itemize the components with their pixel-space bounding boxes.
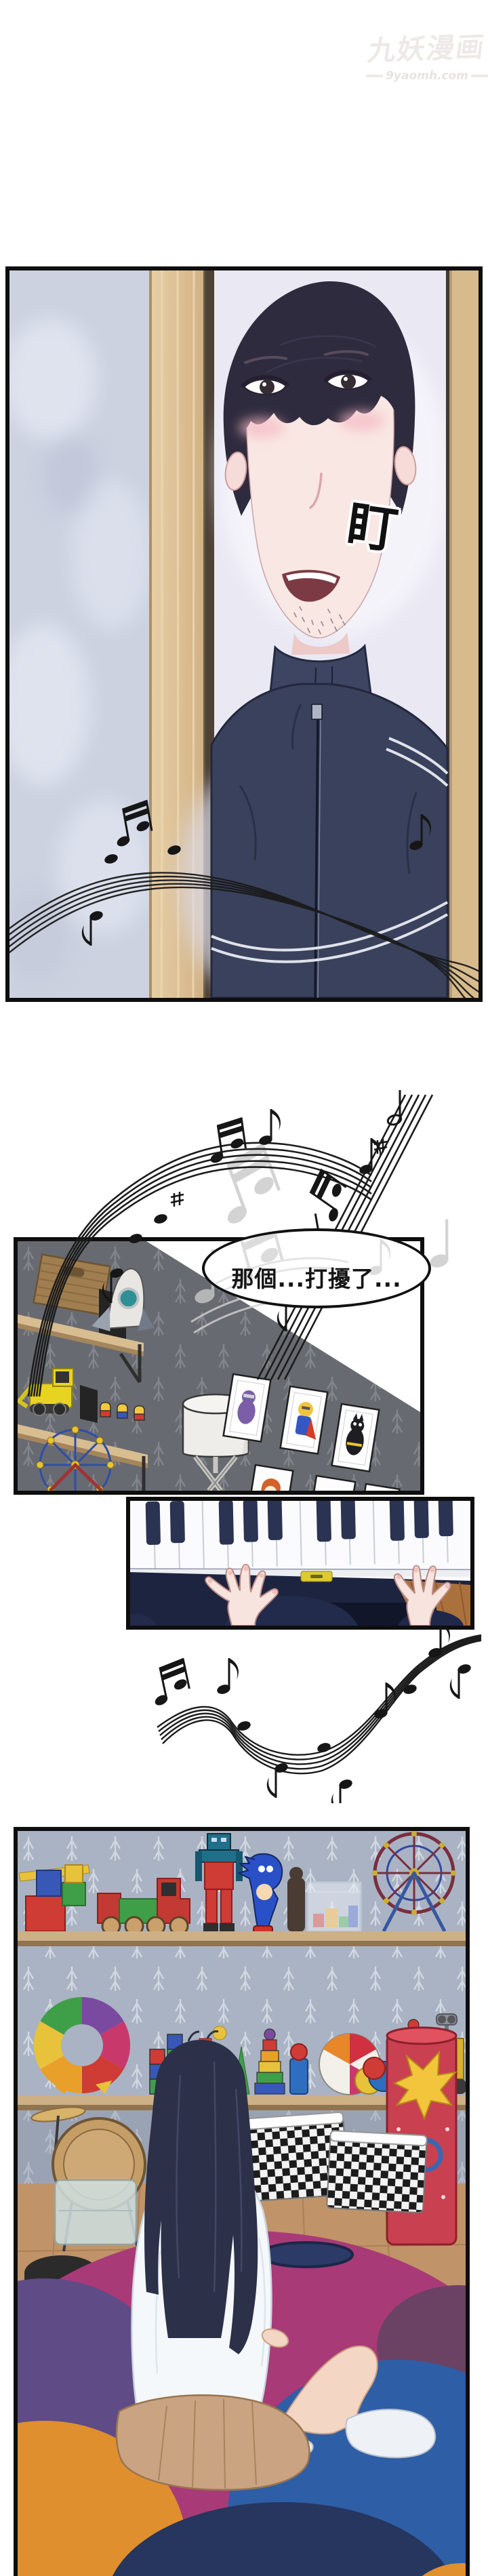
watermark-domain: 9yaomh.com — [386, 69, 468, 83]
speech-bubble-text: 那個...打擾了... — [205, 1231, 428, 1306]
panel-girl-sitting — [14, 1827, 470, 2576]
watermark: 九妖漫画 9yaomh.com — [366, 26, 488, 83]
door-peek-illustration — [9, 270, 479, 998]
watermark-dash — [471, 75, 488, 77]
girl-playroom-illustration — [18, 1831, 466, 2576]
panel-door-peek — [5, 266, 483, 1002]
music-notes-gap-2 — [122, 1627, 488, 1803]
sfx-stare-text: 盯 — [344, 500, 401, 557]
navy-plate — [260, 2242, 352, 2267]
panel-piano — [126, 1497, 474, 1630]
comic-page: 九妖漫画 9yaomh.com — [0, 0, 488, 2576]
watermark-brand: 九妖漫画 — [363, 24, 488, 68]
speech-bubble: 那個...打擾了... — [202, 1228, 431, 1308]
glass-case — [55, 2180, 136, 2245]
watermark-dash — [366, 75, 383, 77]
piano-illustration — [130, 1501, 470, 1626]
